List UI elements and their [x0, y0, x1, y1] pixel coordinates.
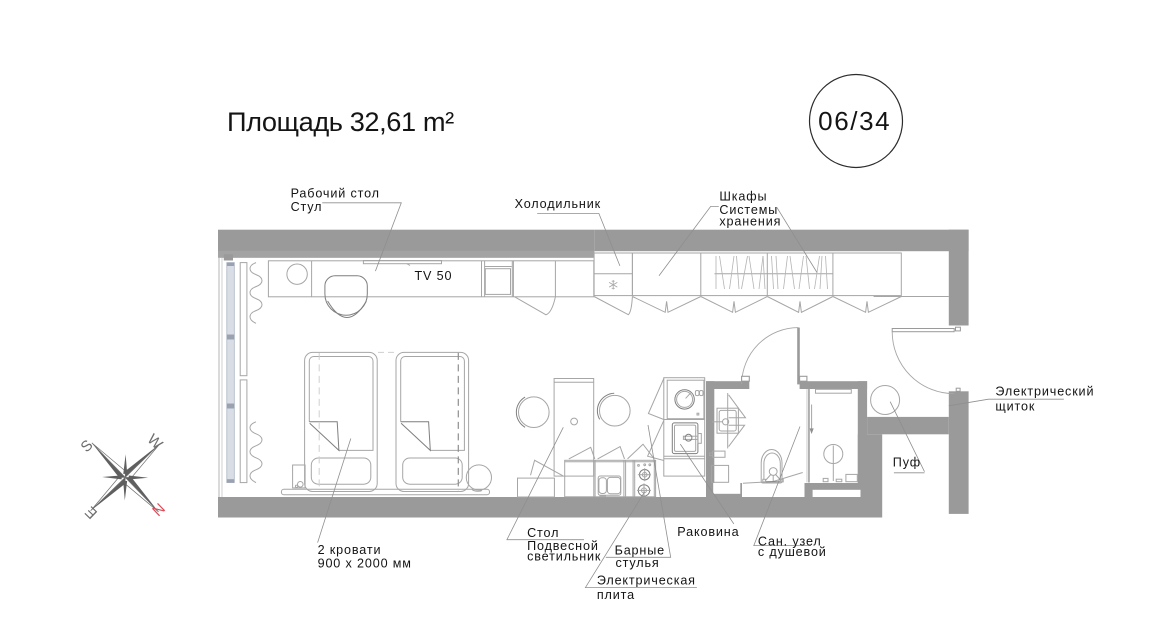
- svg-text:Стол: Стол: [527, 526, 559, 540]
- svg-text:Холодильник: Холодильник: [515, 197, 601, 211]
- svg-text:2 кровати: 2 кровати: [318, 543, 382, 557]
- svg-text:06/34: 06/34: [818, 106, 891, 136]
- svg-text:Пуф: Пуф: [893, 455, 921, 469]
- svg-text:TV 50: TV 50: [415, 269, 453, 283]
- svg-text:Электрическая: Электрическая: [597, 573, 696, 587]
- svg-text:Раковина: Раковина: [677, 525, 739, 539]
- svg-text:с душевой: с душевой: [758, 545, 827, 559]
- svg-text:Рабочий стол: Рабочий стол: [291, 186, 380, 200]
- svg-text:Электрический: Электрический: [995, 385, 1094, 399]
- svg-text:Шкафы: Шкафы: [719, 189, 767, 203]
- svg-text:900 x 2000 мм: 900 x 2000 мм: [318, 556, 412, 570]
- svg-text:хранения: хранения: [719, 214, 781, 228]
- svg-text:Площадь 32,61 m²: Площадь 32,61 m²: [227, 106, 454, 137]
- svg-text:Стул: Стул: [291, 200, 323, 214]
- svg-text:щиток: щиток: [995, 399, 1035, 413]
- svg-text:плита: плита: [597, 588, 635, 602]
- svg-text:светильник: светильник: [527, 550, 601, 564]
- svg-text:стулья: стулья: [616, 556, 660, 570]
